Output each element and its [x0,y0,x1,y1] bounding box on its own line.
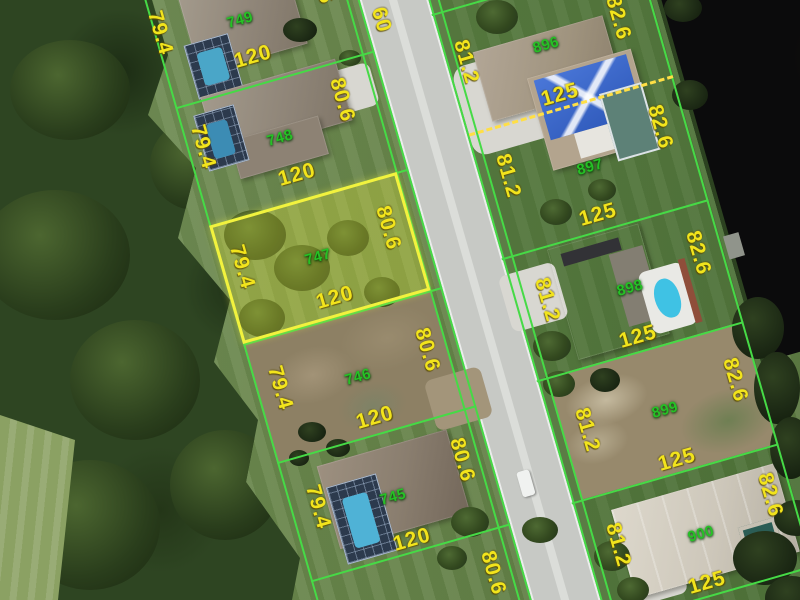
right-of-way-line-east [368,0,646,600]
parcel-lines-layer [0,0,800,600]
aerial-parcel-map[interactable]: 749 748 747 746 745 896 897 898 899 900 … [0,0,800,600]
